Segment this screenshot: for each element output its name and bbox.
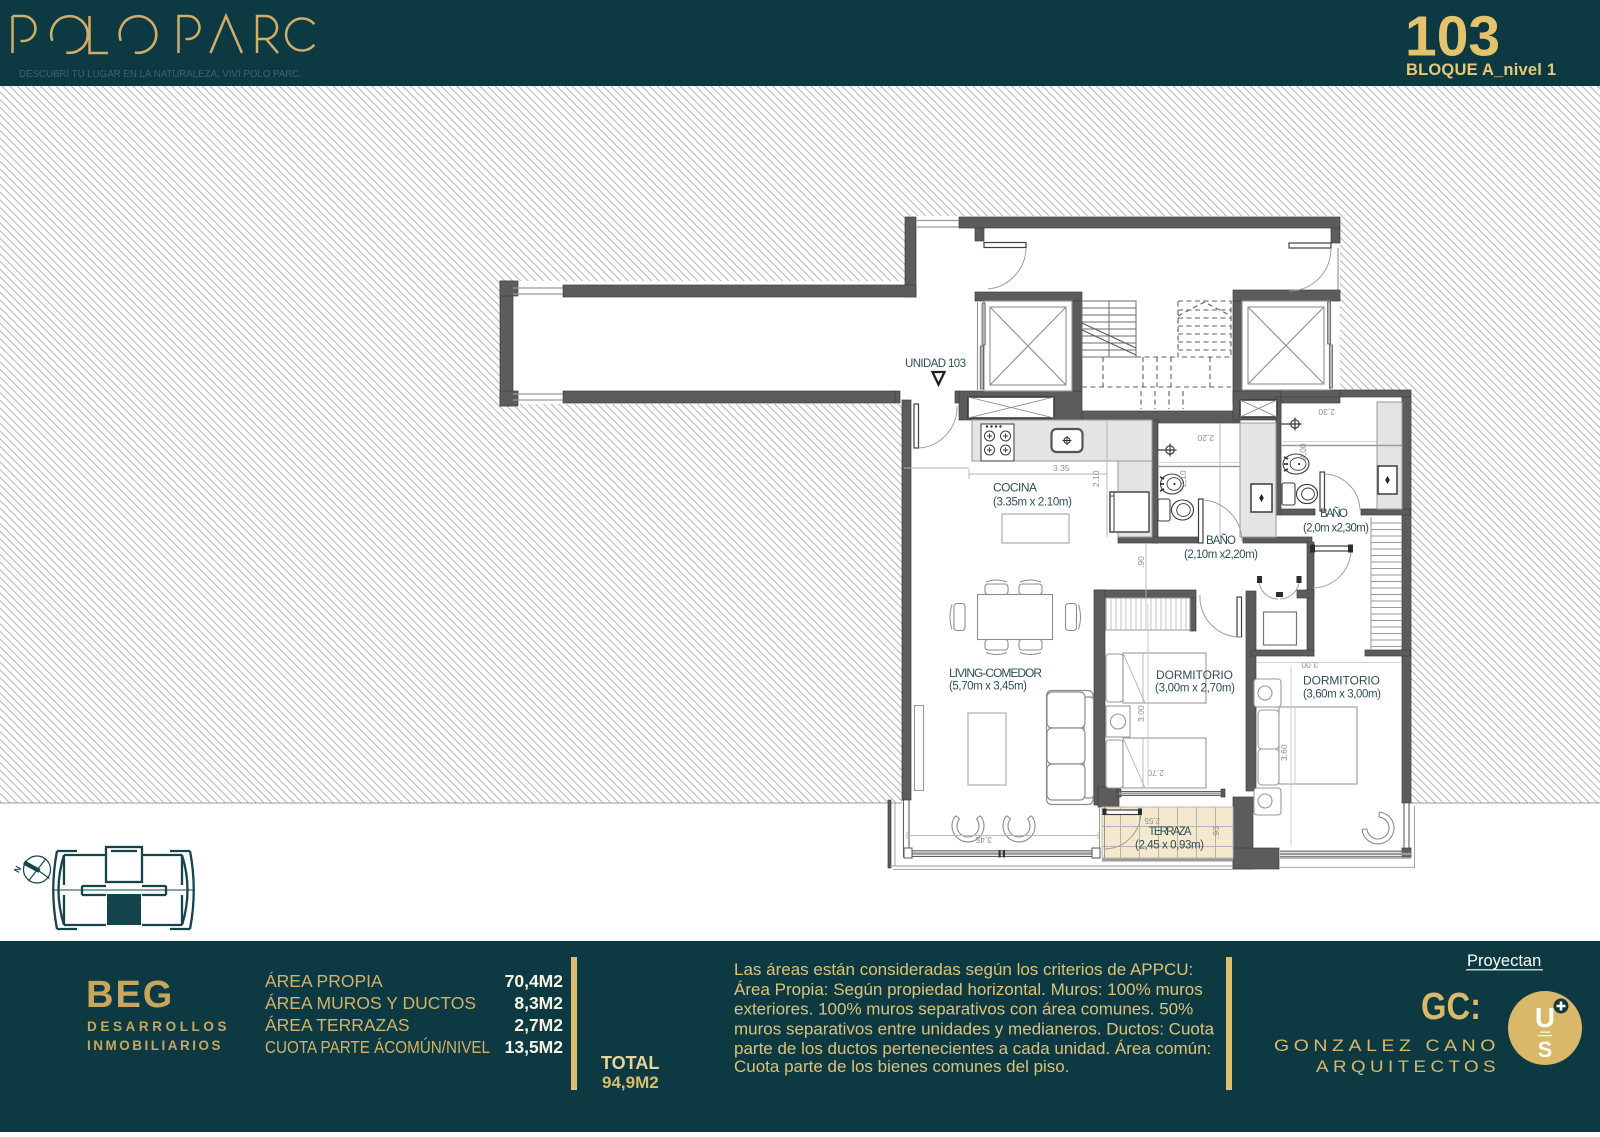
svg-text:(2,45 x 0,93m): (2,45 x 0,93m) xyxy=(1135,840,1204,852)
svg-text:GC:: GC: xyxy=(1421,986,1481,1028)
svg-text:UNIDAD 103: UNIDAD 103 xyxy=(905,358,966,370)
svg-text:TERRAZA: TERRAZA xyxy=(1149,826,1192,838)
svg-text:CUOTA PARTE ÁCOMÚN/NIVEL: CUOTA PARTE ÁCOMÚN/NIVEL xyxy=(265,1036,490,1057)
svg-text:ARQUITECTOS: ARQUITECTOS xyxy=(1316,1057,1500,1076)
svg-text:ÁREA MUROS Y DUCTOS: ÁREA MUROS Y DUCTOS xyxy=(265,993,476,1013)
svg-text:3,00: 3,00 xyxy=(1301,660,1318,670)
svg-text:(3,60m x 3,00m): (3,60m x 3,00m) xyxy=(1303,689,1381,701)
svg-text:S: S xyxy=(1538,1037,1553,1062)
svg-text:BAÑO: BAÑO xyxy=(1206,534,1236,547)
svg-text:ÁREA PROPIA: ÁREA PROPIA xyxy=(265,971,383,991)
svg-text:3,45: 3,45 xyxy=(975,835,992,845)
svg-text:103: 103 xyxy=(1405,5,1500,69)
svg-text:Área Propia: Según propiedad h: Área Propia: Según propiedad horizontal.… xyxy=(734,980,1203,999)
svg-text:DESARROLLOS: DESARROLLOS xyxy=(87,1019,230,1034)
svg-text:2.10: 2.10 xyxy=(1091,470,1101,487)
svg-text:70,4M2: 70,4M2 xyxy=(505,971,564,991)
svg-text:2,00: 2,00 xyxy=(1298,443,1308,460)
svg-text:BLOQUE A_nivel 1: BLOQUE A_nivel 1 xyxy=(1406,61,1556,79)
svg-text:(2,10m x2,20m): (2,10m x2,20m) xyxy=(1184,549,1258,561)
svg-text:INMOBILIARIOS: INMOBILIARIOS xyxy=(87,1038,223,1053)
svg-text:muros separativos entre unidad: muros separativos entre unidades y media… xyxy=(734,1020,1215,1039)
svg-text:(3.35m x 2.10m): (3.35m x 2.10m) xyxy=(993,497,1072,509)
svg-text:LIVING-COMEDOR: LIVING-COMEDOR xyxy=(949,666,1042,680)
svg-text:(3,00m x 2,70m): (3,00m x 2,70m) xyxy=(1155,683,1235,695)
svg-text:parte de los ductos pertenecie: parte de los ductos pertenecientes a cad… xyxy=(734,1039,1211,1058)
svg-text:(2,0m x2,30m): (2,0m x2,30m) xyxy=(1303,523,1369,535)
svg-text:Las áreas están consideradas s: Las áreas están consideradas según los c… xyxy=(734,960,1193,979)
svg-text:8,3M2: 8,3M2 xyxy=(514,993,563,1013)
svg-text:BEG: BEG xyxy=(86,974,174,1016)
svg-text:3.35: 3.35 xyxy=(1053,463,1070,473)
svg-text:3.60: 3.60 xyxy=(1279,744,1289,761)
svg-text:.93: .93 xyxy=(1211,826,1221,838)
svg-text:exteriores. 100% muros separat: exteriores. 100% muros separativos con á… xyxy=(734,1000,1193,1019)
svg-text:2.70: 2.70 xyxy=(1147,768,1164,778)
svg-text:13,5M2: 13,5M2 xyxy=(505,1037,564,1057)
svg-text:DORMITORIO: DORMITORIO xyxy=(1156,668,1233,682)
svg-text:DESCUBRÍ TU LUGAR EN LA NATURA: DESCUBRÍ TU LUGAR EN LA NATURALEZA, VIVÍ… xyxy=(19,67,302,80)
svg-text:2,10: 2,10 xyxy=(1178,470,1188,487)
svg-text:(5,70m x 3,45m): (5,70m x 3,45m) xyxy=(949,681,1027,693)
svg-text:94,9M2: 94,9M2 xyxy=(602,1073,659,1092)
svg-text:COCINA: COCINA xyxy=(993,481,1037,495)
svg-text:2,20: 2,20 xyxy=(1197,433,1214,443)
svg-text:DORMITORIO: DORMITORIO xyxy=(1303,674,1380,688)
svg-text:TOTAL: TOTAL xyxy=(601,1053,659,1073)
svg-text:U: U xyxy=(1535,1002,1555,1033)
svg-text:Proyectan: Proyectan xyxy=(1467,952,1541,970)
svg-text:3.00: 3.00 xyxy=(1136,705,1146,722)
svg-text:2,7M2: 2,7M2 xyxy=(514,1015,563,1035)
svg-text:GONZALEZ CANO: GONZALEZ CANO xyxy=(1274,1036,1500,1055)
svg-text:BAÑO: BAÑO xyxy=(1320,507,1348,520)
svg-text:2,55: 2,55 xyxy=(1144,816,1160,825)
svg-text:ÁREA TERRAZAS: ÁREA TERRAZAS xyxy=(265,1015,410,1035)
svg-text:Cuota parte de los bienes comu: Cuota parte de los bienes comunes del pi… xyxy=(734,1057,1069,1076)
svg-text:2,30: 2,30 xyxy=(1318,407,1335,417)
svg-text:.90: .90 xyxy=(1136,556,1146,568)
